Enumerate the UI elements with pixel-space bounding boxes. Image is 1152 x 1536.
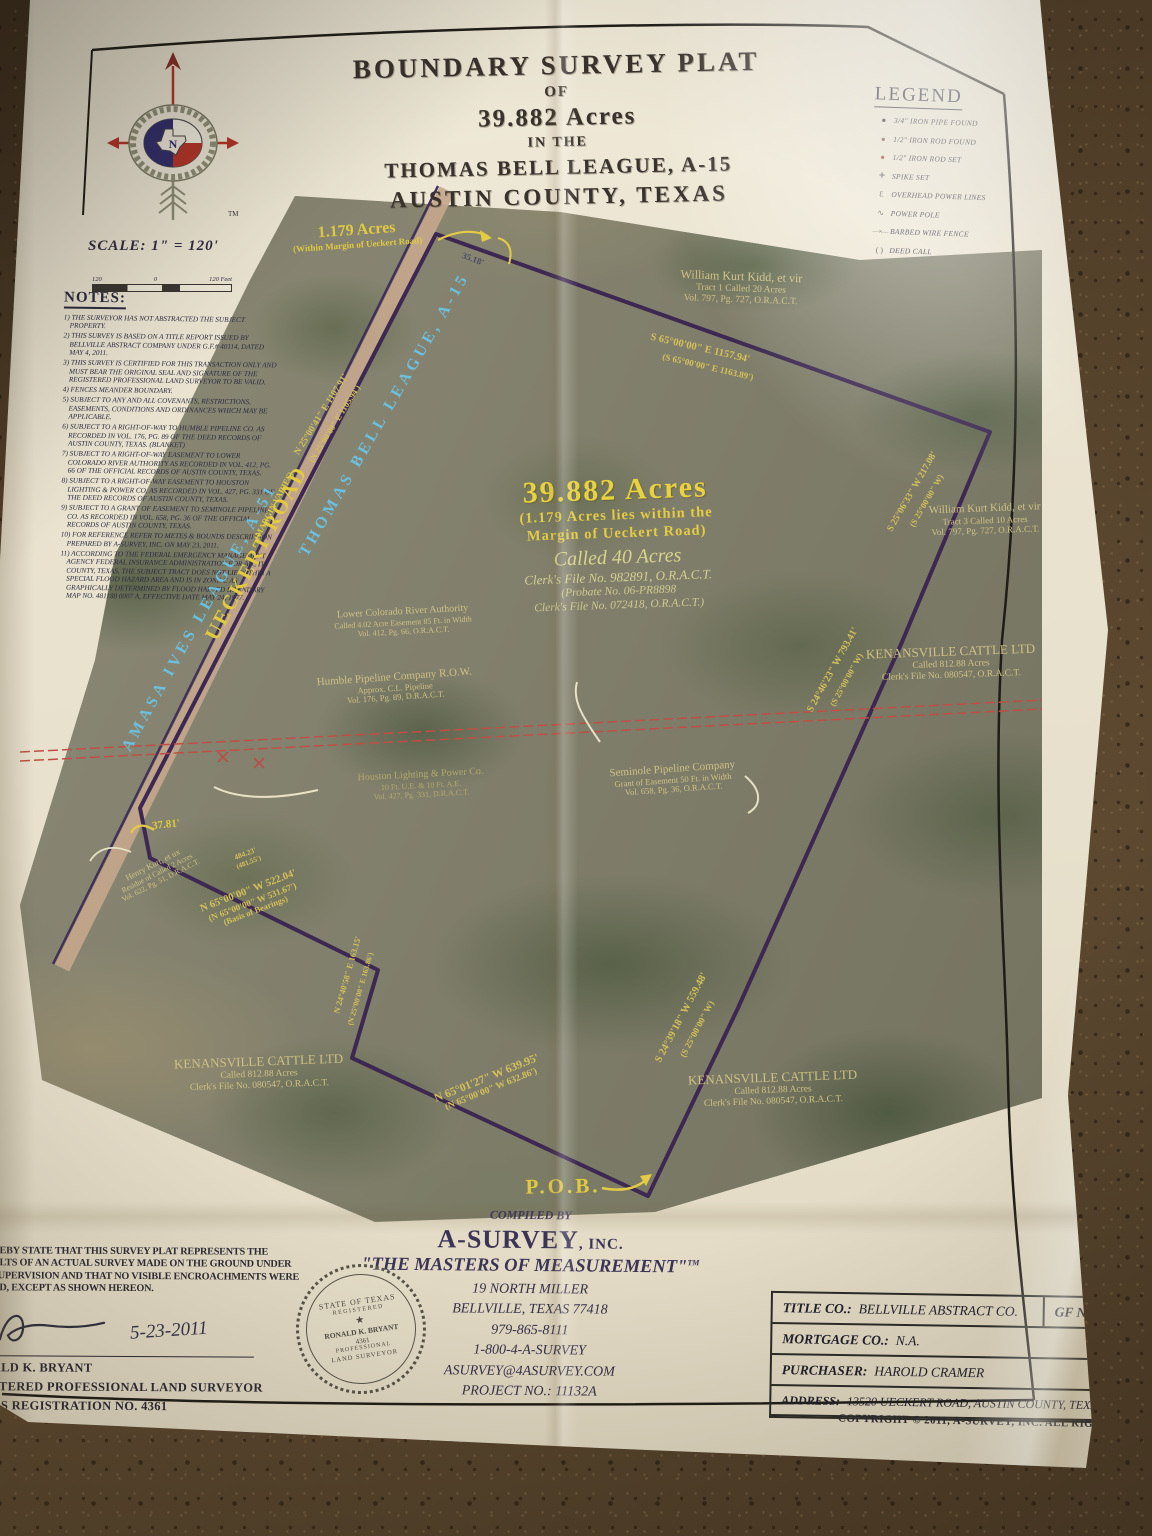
signature-row: 5-23-2011 bbox=[0, 1301, 272, 1354]
note-item: 5) SUBJECT TO ANY AND ALL COVENANTS, RES… bbox=[62, 396, 276, 424]
company-name-suffix: , INC. bbox=[579, 1236, 624, 1252]
surveyor-signature bbox=[0, 1301, 122, 1352]
surveyor-registration: AS REGISTRATION NO. 4361 bbox=[0, 1398, 272, 1414]
barbed-wire-fence-icon: —×— bbox=[870, 227, 890, 236]
legend-item-label: POWER POLE bbox=[891, 208, 940, 219]
mortgage-value: N.A. bbox=[896, 1333, 920, 1348]
address-value: 13520 UECKERT ROAD, AUSTIN COUNTY, TEXAS bbox=[847, 1394, 1104, 1412]
compass-rose-logo: N bbox=[95, 48, 255, 248]
mortgage-label: MORTGAGE CO.: bbox=[782, 1331, 889, 1348]
label-pob: P.O.B. bbox=[525, 1173, 600, 1198]
label-kenansville-right: KENANSVILLE CATTLE LTD Called 812.88 Acr… bbox=[866, 642, 1036, 685]
plat-title: BOUNDARY SURVEY PLAT OF 39.882 Acres IN … bbox=[283, 44, 831, 215]
cert-line: ND, EXCEPT AS SHOWN HEREON. bbox=[0, 1283, 272, 1297]
surveyor-title: STERED PROFESSIONAL LAND SURVEYOR bbox=[0, 1379, 272, 1395]
legend-item-label: 3/4" IRON PIPE FOUND bbox=[894, 116, 978, 128]
note-item: 8) SUBJECT TO A RIGHT-OF-WAY EASEMENT TO… bbox=[61, 477, 275, 505]
address-label: ADDRESS: bbox=[781, 1393, 840, 1408]
legend-item-label: SPIKE SET bbox=[892, 171, 930, 181]
purchaser-label: PURCHASER: bbox=[782, 1362, 868, 1378]
gf-no-value: 40114 bbox=[1111, 1305, 1144, 1321]
deed-call-icon: ( ) bbox=[869, 245, 889, 255]
note-item: 1) THE SURVEYOR HAS NOT ABSTRACTED THE S… bbox=[64, 314, 278, 334]
signature-date: 5-23-2011 bbox=[129, 1317, 208, 1344]
copyright-notice: COPYRIGHT © 2011, A-SURVEY, INC. ALL RIG… bbox=[838, 1413, 1152, 1432]
legend-item: ∿POWER POLE bbox=[871, 208, 1031, 223]
notes-title: NOTES: bbox=[64, 290, 126, 310]
company-name-main: A-SURVEY bbox=[437, 1224, 579, 1254]
gf-no-cell: GF NO.:40114 bbox=[1045, 1297, 1152, 1328]
surveyor-certification: REBY STATE THAT THIS SURVEY PLAT REPRESE… bbox=[0, 1245, 272, 1414]
note-item: 6) SUBJECT TO A RIGHT-OF-WAY TO HUMBLE P… bbox=[62, 423, 276, 451]
title-company-table: TITLE CO.:BELLVILLE ABSTRACT CO. GF NO.:… bbox=[769, 1291, 1152, 1424]
purchaser-cell: PURCHASER:HAROLD CRAMER bbox=[772, 1355, 993, 1387]
project-number: PROJECT NO.: 11132A bbox=[359, 1383, 699, 1402]
signature-line bbox=[0, 1355, 254, 1357]
gf-no-label: GF NO.: bbox=[1055, 1304, 1104, 1320]
legend-item-label: 1/2" IRON ROD SET bbox=[892, 153, 961, 164]
spike-set-icon: ✚ bbox=[872, 171, 892, 180]
company-tagline: "THE MASTERS OF MEASUREMENT"TM bbox=[360, 1255, 700, 1279]
legend-item-label: 1/2" IRON ROD FOUND bbox=[893, 134, 976, 146]
legend-item-label: BARBED WIRE FENCE bbox=[890, 227, 969, 239]
purchaser-value: HAROLD CRAMER bbox=[874, 1364, 984, 1381]
label-kenansville-bottom-left: KENANSVILLE CATTLE LTD Called 812.88 Acr… bbox=[174, 1052, 344, 1095]
iron-rod-found-icon: ● bbox=[873, 134, 893, 144]
legend-item: ●1/2" IRON ROD FOUND bbox=[873, 134, 1033, 149]
label-kidd-tract1: William Kurt Kidd, et vir Tract 1 Called… bbox=[680, 268, 803, 308]
label-kenansville-bottom-right: KENANSVILLE CATTLE LTD Called 812.88 Acr… bbox=[688, 1068, 858, 1111]
power-pole-icon: ∿ bbox=[871, 208, 891, 218]
company-name: A-SURVEY, INC. bbox=[360, 1224, 700, 1257]
photographed-survey-plat: N TM SCALE: 1" = 120' 120 0 120 Feet BOU… bbox=[0, 0, 1152, 1536]
note-item: 2) THIS SURVEY IS BASED ON A TITLE REPOR… bbox=[63, 332, 277, 360]
legend-item: ✚SPIKE SET bbox=[872, 171, 1032, 186]
scale-left-value: 120 bbox=[92, 276, 102, 283]
scale-right-value: 120 Feet bbox=[209, 276, 232, 283]
legend-title: LEGEND bbox=[874, 83, 963, 110]
title-co-cell: TITLE CO.:BELLVILLE ABSTRACT CO. bbox=[773, 1293, 1045, 1326]
title-co-value: BELLVILLE ABSTRACT CO. bbox=[859, 1301, 1018, 1318]
scale-zero-value: 0 bbox=[154, 276, 157, 283]
label-kidd-tract3: William Kurt Kidd, et vir Tract 3 Called… bbox=[929, 500, 1042, 537]
note-item: 3) THIS SURVEY IS CERTIFIED FOR THIS TRA… bbox=[63, 359, 277, 387]
plat-paper-sheet: N TM SCALE: 1" = 120' 120 0 120 Feet BOU… bbox=[0, 0, 1152, 1536]
logo-trademark: TM bbox=[228, 210, 239, 218]
legend-item: ( )DEED CALL bbox=[869, 245, 1029, 260]
surveyor-name: ALD K. BRYANT bbox=[0, 1360, 272, 1376]
iron-pipe-found-icon: ● bbox=[874, 115, 894, 125]
compass-east-head bbox=[227, 137, 239, 149]
legend-item-label: DEED CALL bbox=[889, 245, 932, 255]
legend-item: ●1/2" IRON ROD SET bbox=[872, 152, 1032, 167]
legend-item: ●3/4" IRON PIPE FOUND bbox=[874, 115, 1034, 130]
legend: LEGEND ●3/4" IRON PIPE FOUND ●1/2" IRON … bbox=[869, 83, 1035, 268]
mortgage-cell: MORTGAGE CO.:N.A. bbox=[772, 1324, 928, 1355]
compass-west-head bbox=[107, 137, 119, 149]
label-acreage-callout: 39.882 Acres (1.179 Acres lies within th… bbox=[518, 471, 716, 615]
title-co-label: TITLE CO.: bbox=[783, 1300, 852, 1316]
legend-item: ƐOVERHEAD POWER LINES bbox=[871, 189, 1031, 204]
compiled-by-label: COMPILED BY bbox=[361, 1207, 701, 1225]
legend-item-label: OVERHEAD POWER LINES bbox=[891, 190, 986, 202]
iron-rod-set-icon: ● bbox=[872, 152, 892, 162]
seal-inner-ring bbox=[299, 1267, 423, 1391]
overhead-power-icon: Ɛ bbox=[871, 189, 891, 199]
tagline-text: "THE MASTERS OF MEASUREMENT" bbox=[361, 1255, 687, 1278]
legend-item: —×—BARBED WIRE FENCE bbox=[870, 226, 1030, 241]
note-item: 7) SUBJECT TO A RIGHT-OF-WAY EASEMENT TO… bbox=[62, 450, 276, 478]
scale-label: SCALE: 1" = 120' bbox=[88, 238, 219, 255]
compass-n-letter: N bbox=[169, 137, 178, 151]
tagline-tm: TM bbox=[687, 1258, 699, 1267]
